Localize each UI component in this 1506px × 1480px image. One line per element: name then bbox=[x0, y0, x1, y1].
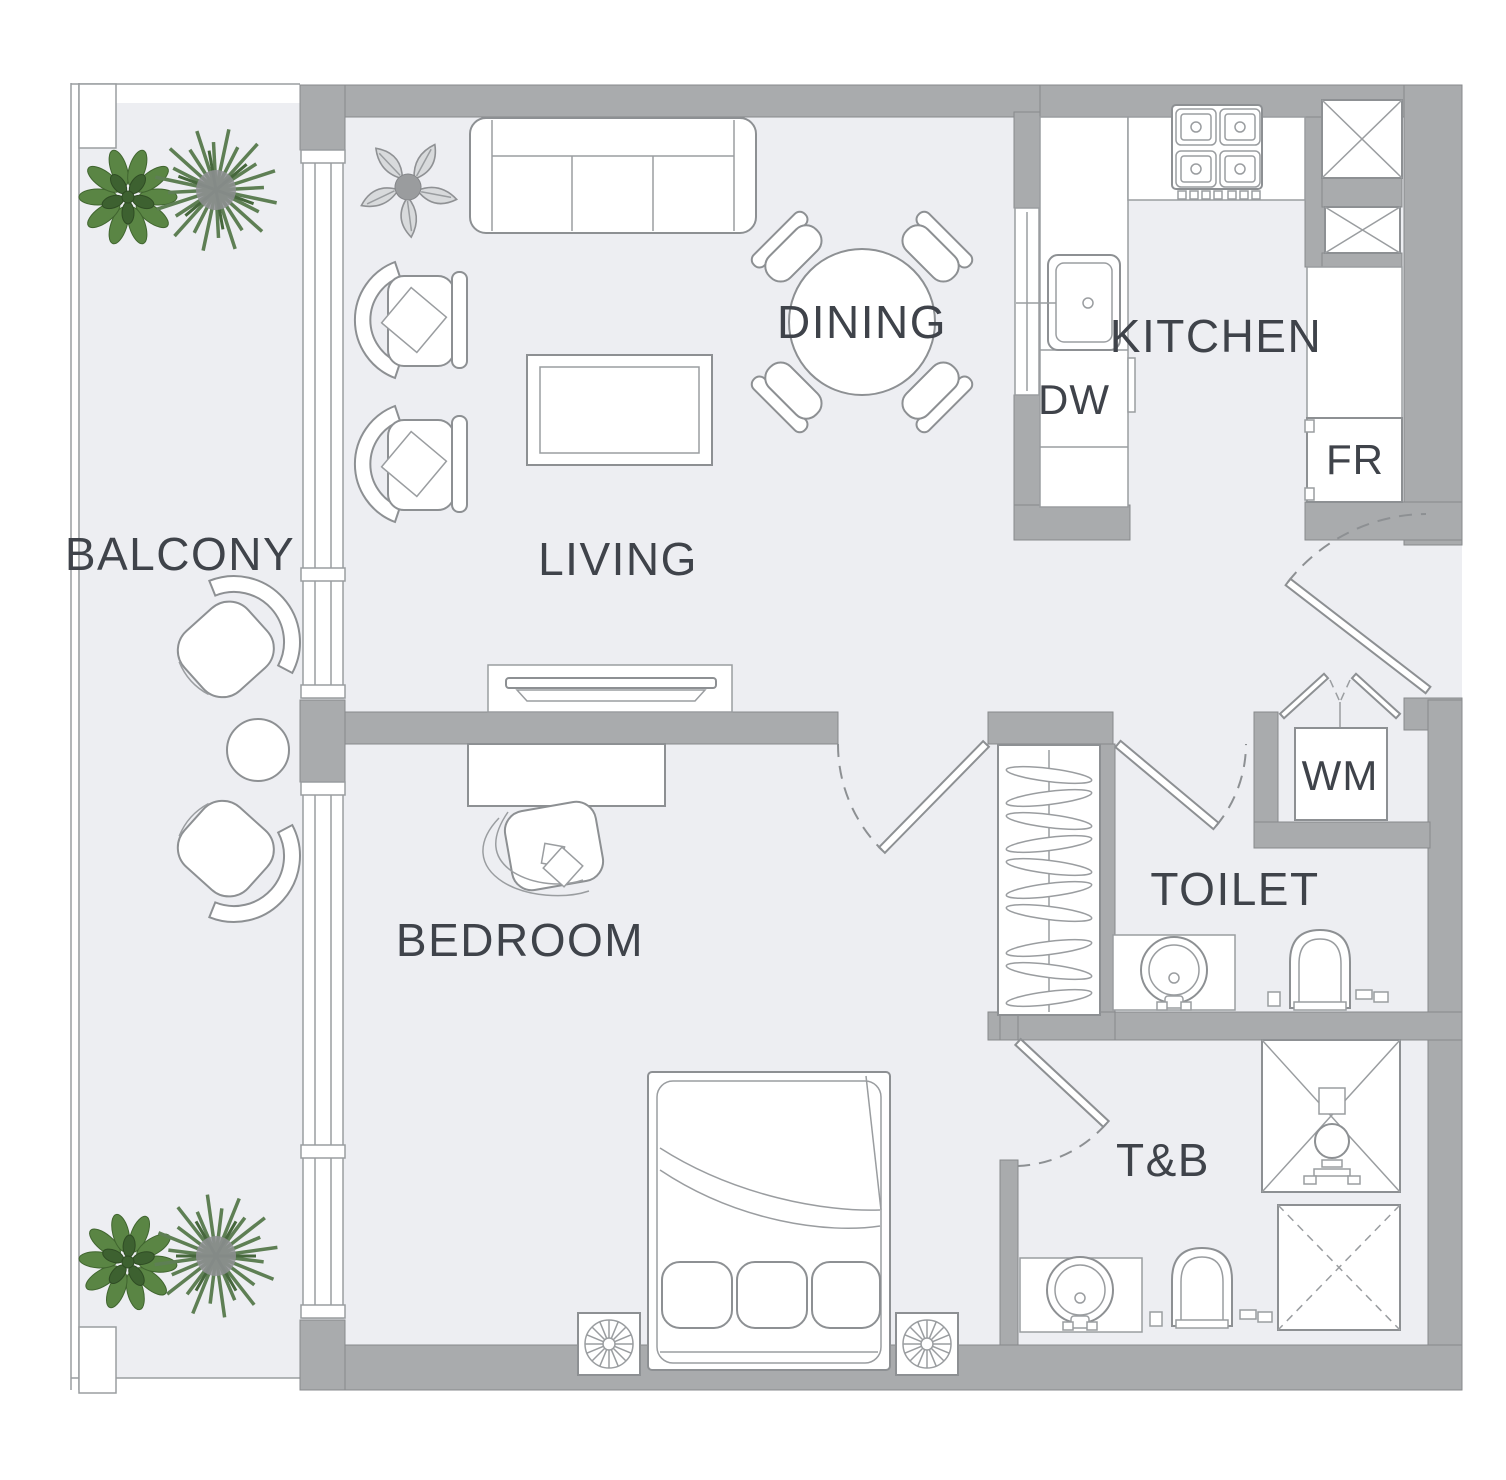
fridge-label: FR bbox=[1326, 436, 1384, 483]
wall-tb-left-stub bbox=[1000, 1012, 1018, 1040]
living-label: LIVING bbox=[538, 533, 698, 585]
tv-console bbox=[488, 665, 732, 712]
duct-shaft-2 bbox=[1325, 207, 1400, 253]
wall-window-col-top bbox=[300, 85, 345, 150]
wall-above-wardrobe bbox=[988, 712, 1113, 744]
toilet-label: TOILET bbox=[1150, 863, 1319, 915]
wall-toilet-bottom bbox=[1115, 1012, 1462, 1040]
wall-window-col-mid bbox=[300, 700, 345, 782]
sofa bbox=[470, 118, 756, 233]
dining-label: DINING bbox=[777, 296, 947, 348]
balcony-label: BALCONY bbox=[65, 528, 295, 580]
wall-wm-bottom bbox=[1254, 822, 1430, 848]
balcony-table bbox=[227, 719, 289, 781]
nightstand-left bbox=[578, 1313, 640, 1375]
dishwasher-label: DW bbox=[1038, 376, 1110, 423]
wall-between-shafts bbox=[1322, 178, 1402, 207]
nightstand-right bbox=[896, 1313, 958, 1375]
tb-toilet-bowl bbox=[1172, 1248, 1232, 1328]
wall-kitchen-bottom bbox=[1014, 505, 1130, 540]
wall-kitchen-left-bottom bbox=[1014, 395, 1040, 507]
wall-right-upper bbox=[1404, 85, 1462, 545]
floor-plan-page: BALCONY LIVING DINING KITCHEN BEDROOM TO… bbox=[0, 0, 1506, 1480]
stove bbox=[1172, 105, 1262, 199]
wall-right-lower bbox=[1428, 700, 1462, 1390]
pillow bbox=[812, 1262, 880, 1328]
tb-label: T&B bbox=[1116, 1134, 1210, 1186]
tb-duct-shaft bbox=[1278, 1205, 1400, 1330]
wall-top-living bbox=[300, 85, 1040, 117]
kitchen-label: KITCHEN bbox=[1110, 310, 1322, 362]
dishwasher-handle bbox=[1128, 358, 1135, 412]
washing-machine-label: WM bbox=[1302, 752, 1379, 799]
pillow bbox=[737, 1262, 807, 1328]
shower bbox=[1262, 1040, 1400, 1192]
toilet-bowl bbox=[1290, 930, 1350, 1010]
bed bbox=[648, 1072, 890, 1370]
balcony-window-lower bbox=[301, 782, 345, 1318]
kitchen-window bbox=[1015, 208, 1039, 395]
wall-tb-left bbox=[1000, 1160, 1018, 1345]
balcony-window-upper bbox=[301, 150, 345, 698]
wall-kitchen-left-top bbox=[1014, 112, 1040, 208]
wall-living-bedroom bbox=[300, 712, 838, 744]
wall-kitchen-bottom-right bbox=[1305, 502, 1462, 540]
coffee-table bbox=[527, 355, 712, 465]
bedroom-label: BEDROOM bbox=[396, 914, 644, 966]
wall-window-col-bottom bbox=[300, 1320, 345, 1390]
duct-shaft-1 bbox=[1322, 100, 1402, 178]
desk bbox=[468, 744, 665, 806]
pillow bbox=[662, 1262, 732, 1328]
floor-plan-svg: BALCONY LIVING DINING KITCHEN BEDROOM TO… bbox=[0, 0, 1506, 1480]
wardrobe bbox=[998, 745, 1100, 1015]
